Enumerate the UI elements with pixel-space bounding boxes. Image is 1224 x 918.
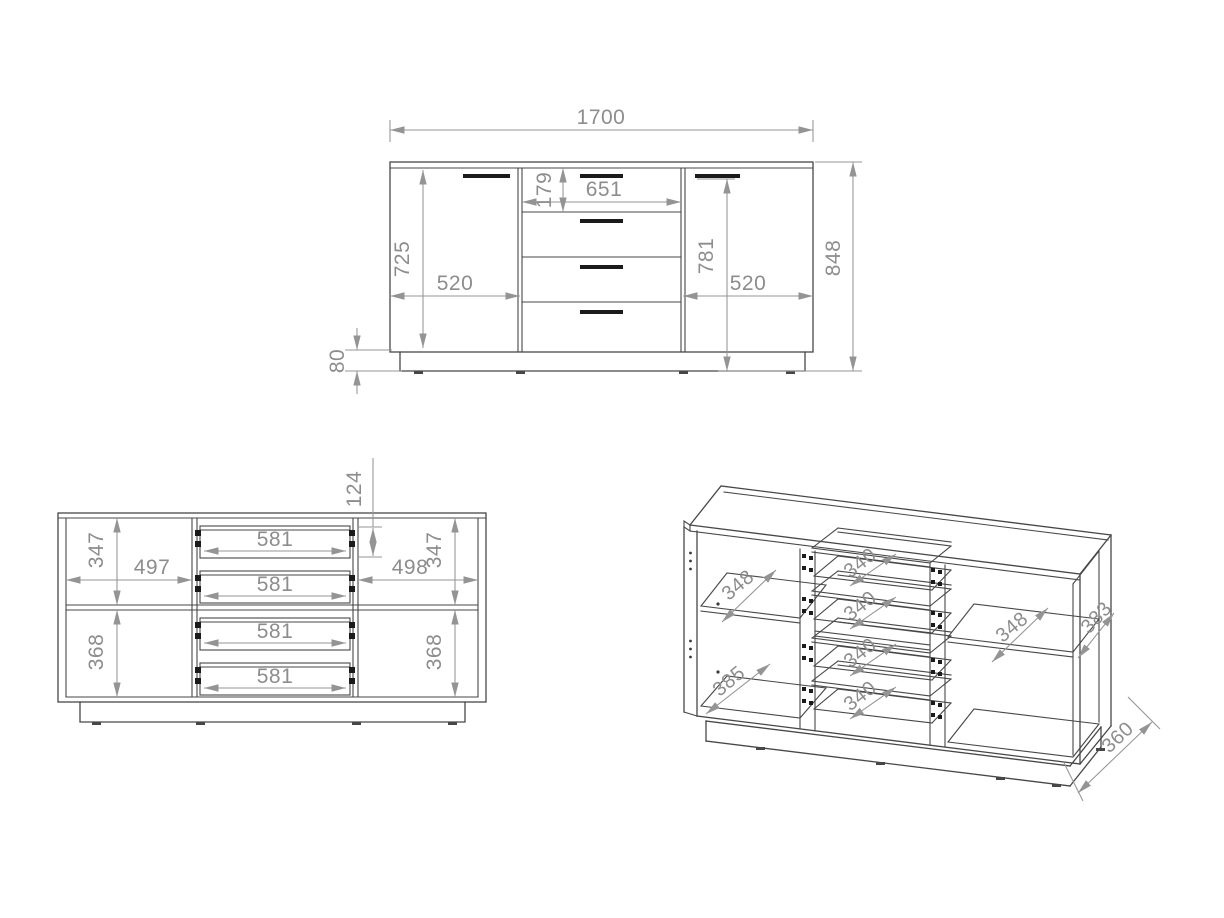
dim-right-door-width: 520 xyxy=(683,272,813,296)
dim-label-drawer-depth: 340 xyxy=(840,587,881,626)
dim-label-right-width: 498 xyxy=(392,556,429,579)
dim-label-drawer-opening-width: 651 xyxy=(586,178,623,201)
dim-label-drawer-width: 581 xyxy=(257,528,294,551)
dim-label-plinth-height: 80 xyxy=(326,349,349,373)
dim-drawer-width-2: 581 xyxy=(204,573,346,596)
dim-right-width: 498 xyxy=(358,556,478,580)
dim-label-left-shelf-depth: 348 xyxy=(718,566,759,605)
drawer-handle xyxy=(580,219,623,223)
dim-left-top-height: 347 xyxy=(85,518,117,605)
dim-label-overall-width: 1700 xyxy=(577,106,626,129)
dim-label-left-width: 497 xyxy=(134,556,171,579)
dim-drawer-width-3: 581 xyxy=(204,620,346,643)
dim-label-drawer-width: 581 xyxy=(257,665,294,688)
dim-label-left-top-height: 347 xyxy=(85,532,108,569)
view-front-elevation: 1700 725 520 179 651 781 520 xyxy=(326,106,862,394)
drawing-canvas: 1700 725 520 179 651 781 520 xyxy=(0,0,1224,918)
dim-label-right-bottom-height: 368 xyxy=(423,634,446,671)
drawer-handle xyxy=(580,265,623,269)
dim-overall-width: 1700 xyxy=(390,106,813,142)
dim-drawer-width-1: 581 xyxy=(204,528,346,551)
dim-label-left-bottom-height: 368 xyxy=(85,634,108,671)
dim-label-drawer-box-height: 124 xyxy=(343,471,366,508)
right-door-handle xyxy=(695,174,740,178)
dim-left-bottom-height: 368 xyxy=(85,610,117,697)
dim-right-shelf-depth: 348 xyxy=(992,608,1048,662)
dim-drawer-box-height: 124 xyxy=(343,458,382,557)
dim-plinth-depth: 360 xyxy=(1064,697,1160,801)
dim-label-right-door-width: 520 xyxy=(730,272,767,295)
dim-label-right-shelf-depth: 348 xyxy=(992,608,1033,647)
dim-label-right-section-height: 781 xyxy=(695,238,718,275)
dim-label-overall-height: 848 xyxy=(822,240,845,277)
furniture-technical-drawing: 1700 725 520 179 651 781 520 xyxy=(0,0,1224,918)
dim-label-drawer-depth: 340 xyxy=(840,544,881,583)
dim-label-top-drawer-height: 179 xyxy=(533,172,556,209)
view-isometric: 348 385 340 340 340 340 348 383 xyxy=(684,486,1160,801)
dim-right-bottom-height: 368 xyxy=(423,610,455,697)
iso-carcass xyxy=(684,486,1111,787)
dim-left-door-height: 725 xyxy=(391,170,423,348)
dim-label-drawer-depth: 340 xyxy=(840,677,881,716)
dim-top-drawer-height: 179 xyxy=(533,168,563,212)
dim-label-left-door-width: 520 xyxy=(437,272,474,295)
dim-drawer-width-4: 581 xyxy=(204,665,346,688)
dim-left-bottom-depth: 385 xyxy=(706,662,770,714)
dim-label-left-bottom-depth: 385 xyxy=(709,662,750,701)
plinth xyxy=(80,702,465,722)
dim-label-left-door-height: 725 xyxy=(391,241,414,278)
left-door-handle xyxy=(463,174,510,178)
dim-label-drawer-width: 581 xyxy=(257,573,294,596)
drawer-handle xyxy=(580,310,623,314)
view-front-internal: 581 581 581 581 347 497 368 347 xyxy=(58,458,486,725)
dim-label-plinth-depth: 360 xyxy=(1098,718,1139,758)
dim-label-drawer-width: 581 xyxy=(257,620,294,643)
plinth xyxy=(400,352,805,371)
dim-overall-height: 848 xyxy=(718,162,862,371)
